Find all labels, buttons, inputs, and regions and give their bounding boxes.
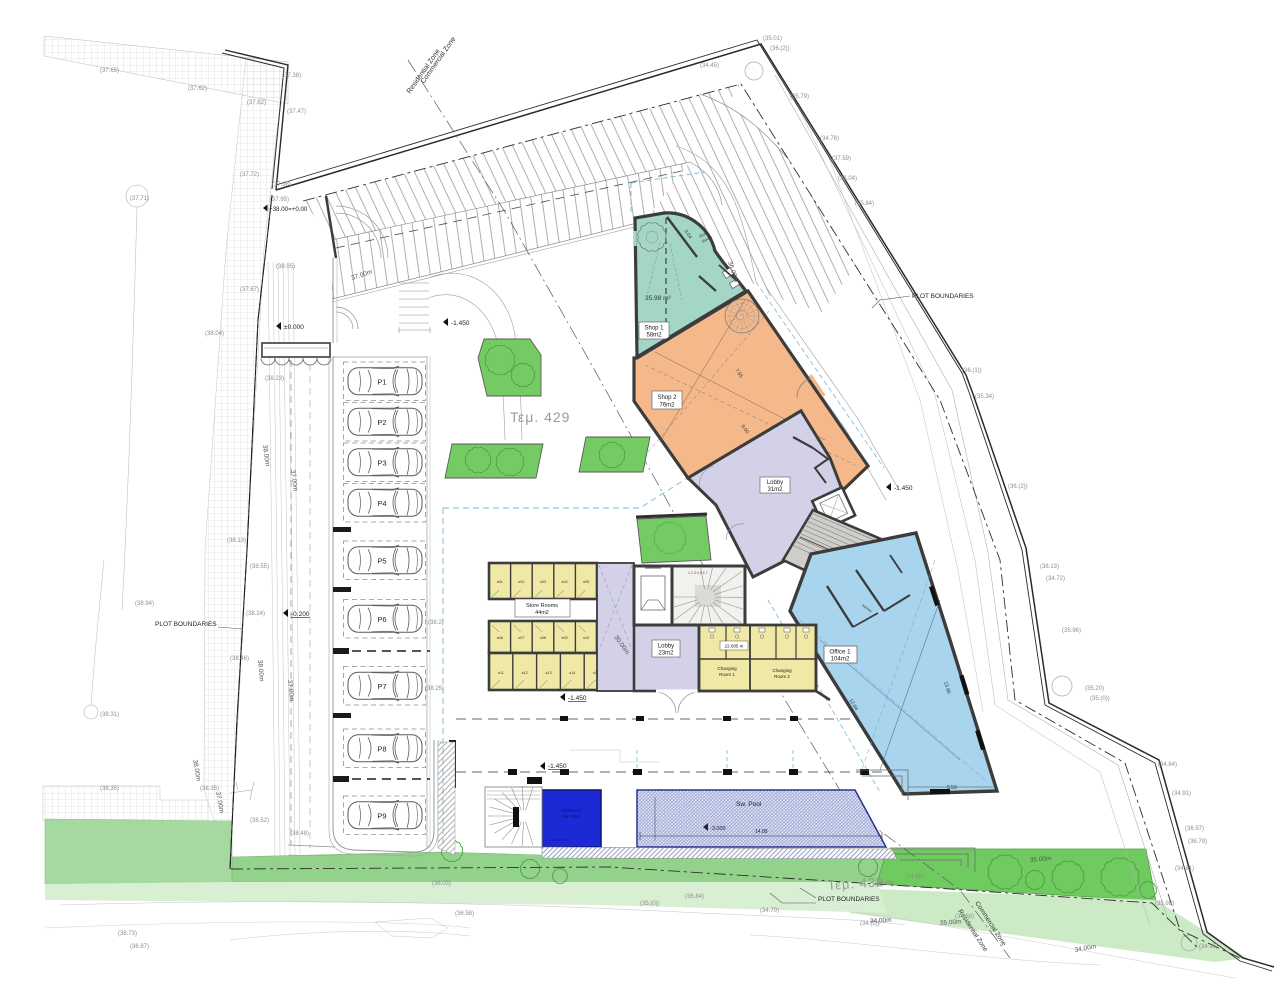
svg-text:(38.52): (38.52) [250,818,269,824]
svg-text:s14: s14 [569,671,575,675]
svg-text:(36.73): (36.73) [118,931,137,937]
svg-text:(37.47): (37.47) [287,109,306,115]
svg-text:P6: P6 [377,615,386,624]
svg-text:(35.(0)): (35.(0)) [1090,696,1110,702]
svg-text:s10: s10 [583,636,589,640]
svg-text:(34.70): (34.70) [760,908,779,914]
svg-text:s06: s06 [497,636,503,640]
svg-text:(34.78): (34.78) [820,136,839,142]
svg-text:Changing: Changing [717,666,737,671]
svg-text:(35.01): (35.01) [763,36,782,42]
svg-text:+38.00=+0.00: +38.00=+0.00 [269,206,308,213]
svg-text:±0.000: ±0.000 [284,324,304,331]
svg-text:(36.03): (36.03) [432,881,451,887]
svg-text:58m2: 58m2 [646,333,662,339]
svg-text:(37.65): (37.65) [100,68,119,74]
svg-text:Store Rooms: Store Rooms [526,603,558,609]
svg-text:(35.79): (35.79) [790,94,809,100]
svg-text:s05: s05 [583,580,589,584]
svg-text:(37.59): (37.59) [832,156,851,162]
svg-text:s09: s09 [562,636,568,640]
svg-text:(38.04): (38.04) [205,331,224,337]
svg-text:Lobby: Lobby [658,644,674,650]
svg-text:(37.62): (37.62) [188,86,207,92]
svg-text:(34.95): (34.95) [1199,944,1218,950]
svg-text:1 2 3 4 5 6 7: 1 2 3 4 5 6 7 [688,571,708,575]
svg-text:Τεμ. 429: Τεμ. 429 [510,409,570,425]
svg-text:(37.38): (37.38) [282,73,301,79]
svg-text:-0.200: -0.200 [291,611,310,618]
svg-text:P9: P9 [377,812,386,821]
svg-text:s13: s13 [545,671,551,675]
svg-text:(38.55): (38.55) [250,564,269,570]
svg-text:(34.84): (34.84) [1158,762,1177,768]
svg-text:s12: s12 [522,671,528,675]
svg-text:44m2: 44m2 [535,610,549,616]
svg-text:s01: s01 [497,580,503,584]
svg-text:(36.(2)): (36.(2)) [1008,484,1028,490]
svg-text:31m2: 31m2 [767,487,783,493]
svg-text:76m2: 76m2 [659,403,675,409]
svg-text:23m2: 23m2 [658,651,674,657]
svg-text:(38.46): (38.46) [230,656,249,662]
svg-text:(37.98): (37.98) [272,182,291,188]
svg-text:(34.72): (34.72) [1046,576,1065,582]
svg-text:P2: P2 [377,418,386,427]
svg-text:Changing: Changing [772,668,792,673]
svg-text:(36.(2)): (36.(2)) [770,46,790,52]
svg-text:(35.20): (35.20) [1085,686,1104,692]
svg-text:(35.96): (35.96) [1062,628,1081,634]
svg-text:-1.450: -1.450 [451,320,470,327]
svg-text:-1.450: -1.450 [568,695,587,702]
svg-text:(38.13): (38.13) [227,538,246,544]
svg-text:104m2: 104m2 [831,656,850,663]
svg-text:(38.23): (38.23) [265,376,284,382]
svg-text:s02: s02 [518,580,524,584]
svg-text:s07: s07 [518,636,524,640]
svg-text:(35.84): (35.84) [855,201,874,207]
svg-text:(36.79): (36.79) [1188,839,1207,845]
svg-text:(36.84): (36.84) [685,894,704,900]
svg-text:(37.71): (37.71) [130,196,149,202]
svg-text:(36.(1)): (36.(1)) [962,368,982,374]
svg-text:Children's: Children's [561,808,582,813]
svg-text:(36.58): (36.58) [455,911,474,917]
svg-text:PLOT BOUNDARIES: PLOT BOUNDARIES [818,896,880,903]
svg-text:Room 1: Room 1 [719,672,735,677]
svg-text:(36.98): (36.98) [875,881,894,887]
svg-text:(35.(0)): (35.(0)) [640,901,660,907]
svg-text:Sw. Pool: Sw. Pool [736,801,762,808]
svg-text:(35.34): (35.34) [975,394,994,400]
svg-text:Lobby: Lobby [767,480,783,486]
svg-text:(38.48): (38.48) [290,831,309,837]
svg-text:P8: P8 [377,745,386,754]
svg-text:(38.25): (38.25) [425,686,444,692]
svg-text:(36.97): (36.97) [1185,826,1204,832]
svg-text:Sw. Pool: Sw. Pool [562,814,580,819]
svg-text:(37.72): (37.72) [240,172,259,178]
svg-text:(34.81): (34.81) [1175,866,1194,872]
svg-text:(37.67): (37.67) [240,287,259,293]
svg-text:(34.91): (34.91) [1172,791,1191,797]
svg-text:(36.04): (36.04) [838,176,857,182]
svg-text:5.59: 5.59 [947,785,957,791]
svg-text:(37.95): (37.95) [270,197,289,203]
svg-text:Shop 2: Shop 2 [657,395,677,401]
svg-text:(38.05): (38.05) [276,264,295,270]
svg-text:s04: s04 [562,580,568,584]
svg-text:(34.(2)): (34.(2)) [860,921,880,927]
svg-text:(34.68): (34.68) [955,914,974,920]
svg-text:(38.94): (38.94) [135,601,154,607]
svg-text:PLOT BOUNDARIES: PLOT BOUNDARIES [912,293,974,300]
svg-text:P4: P4 [377,499,386,508]
svg-text:Shop 1: Shop 1 [644,326,664,332]
svg-text:s03: s03 [540,580,546,584]
svg-text:-3.000: -3.000 [710,826,726,832]
svg-text:(38.31): (38.31) [100,712,119,718]
svg-text:35.98 m²: 35.98 m² [645,295,671,302]
svg-text:s11: s11 [498,671,504,675]
svg-text:(37.62): (37.62) [247,100,266,106]
svg-text:22.685 m: 22.685 m [725,644,744,649]
svg-text:(38.2): (38.2) [428,620,444,626]
svg-text:(38.35): (38.35) [100,786,119,792]
svg-text:-1.450: -1.450 [894,485,913,492]
svg-text:s08: s08 [540,636,546,640]
svg-text:(35.98): (35.98) [1155,901,1174,907]
svg-text:P3: P3 [377,459,386,468]
svg-text:P5: P5 [377,557,386,566]
svg-text:(34.88): (34.88) [905,874,924,880]
svg-text:-1.450: -1.450 [548,763,567,770]
svg-text:(38.35): (38.35) [200,786,219,792]
svg-text:P7: P7 [377,682,386,691]
svg-text:Room 2: Room 2 [774,674,790,679]
svg-text:Office 1: Office 1 [829,649,851,656]
svg-text:(38.24): (38.24) [246,611,265,617]
svg-text:PLOT BOUNDARIES: PLOT BOUNDARIES [155,621,217,628]
svg-text:14.89: 14.89 [755,829,768,835]
svg-text:(38.13): (38.13) [1040,564,1059,570]
svg-text:(34.45): (34.45) [700,63,719,69]
svg-text:(36.87): (36.87) [130,944,149,950]
svg-text:P1: P1 [377,378,386,387]
